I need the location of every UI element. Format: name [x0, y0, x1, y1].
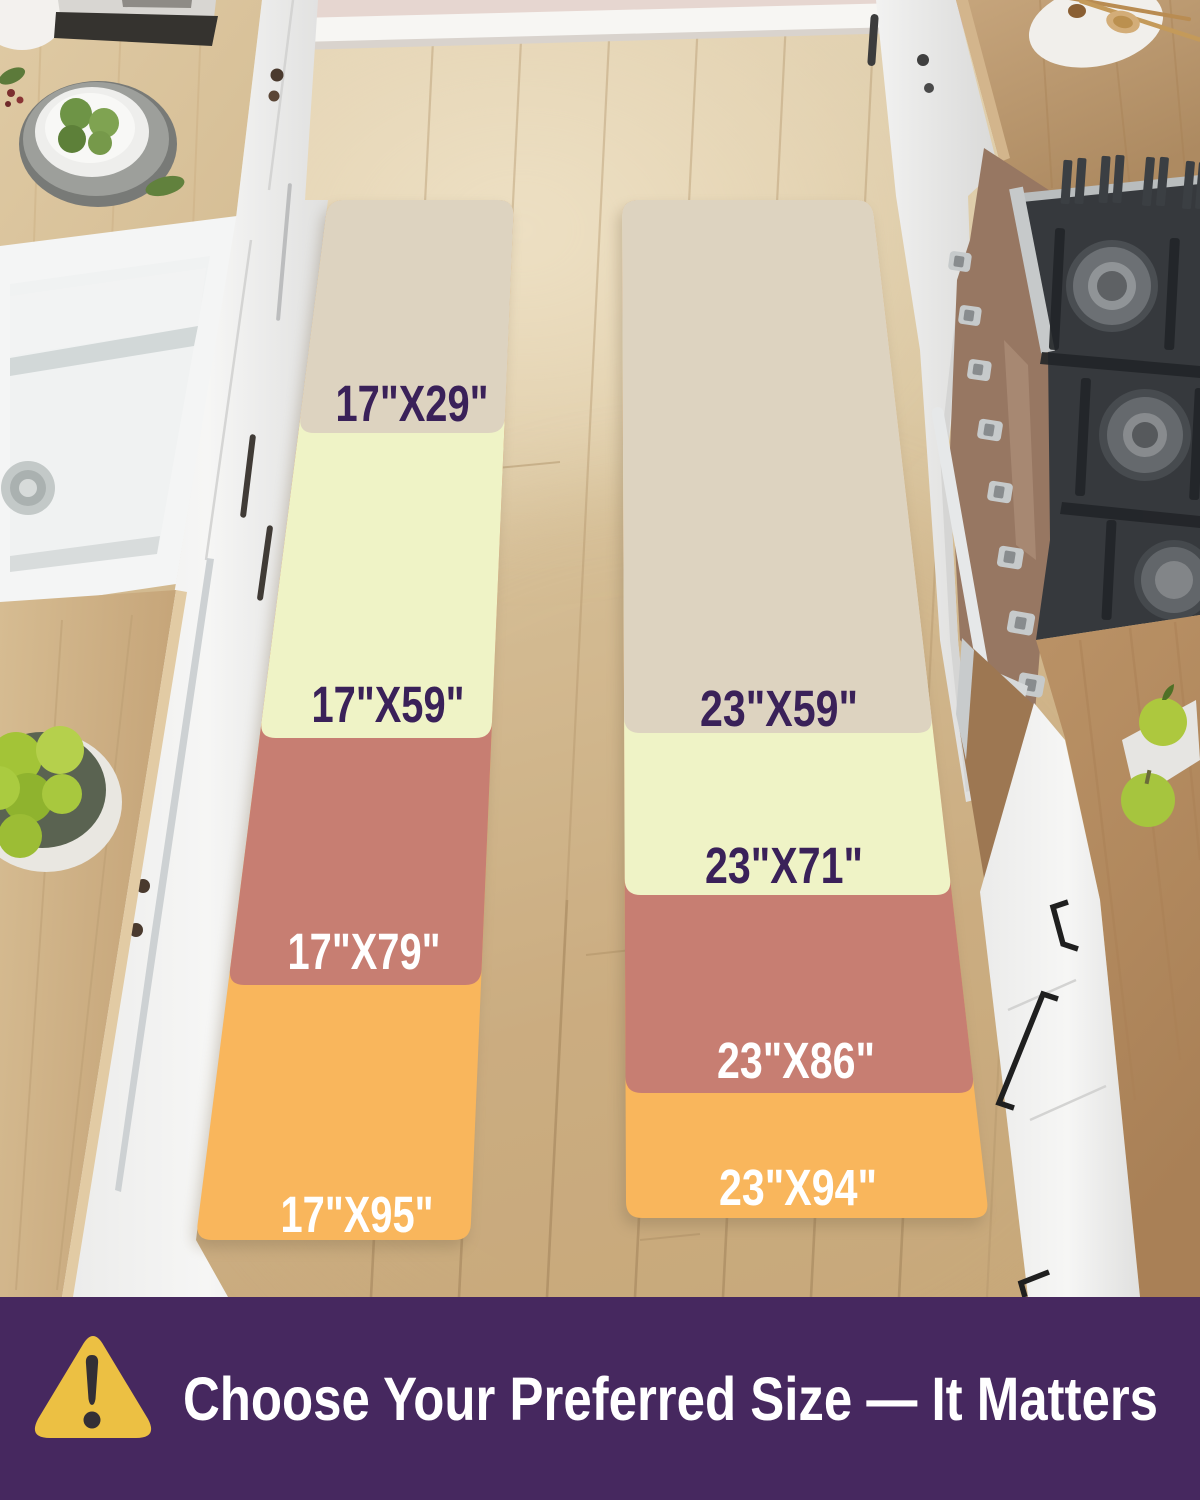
svg-text:23"X94": 23"X94"	[719, 1159, 877, 1216]
svg-text:23"X86": 23"X86"	[717, 1032, 875, 1089]
svg-text:17"X95": 17"X95"	[281, 1186, 434, 1243]
svg-text:17"X59": 17"X59"	[312, 676, 465, 733]
svg-text:23"X71": 23"X71"	[705, 837, 863, 894]
svg-text:17"X29": 17"X29"	[336, 375, 489, 432]
svg-text:23"X59": 23"X59"	[700, 680, 858, 737]
svg-text:Choose Your Preferred Size — I: Choose Your Preferred Size — It Matters	[183, 1365, 1158, 1433]
svg-text:17"X79": 17"X79"	[288, 923, 441, 980]
